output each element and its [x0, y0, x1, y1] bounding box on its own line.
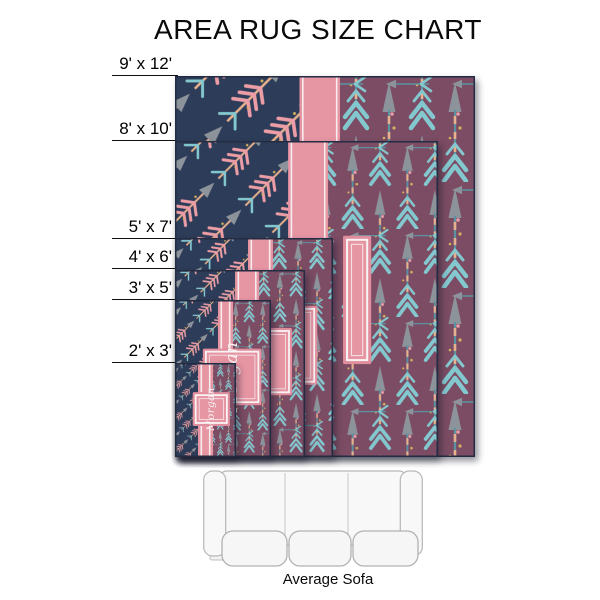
size-line-3x5	[112, 299, 178, 300]
size-label-2x3: 2' x 3'	[70, 341, 172, 361]
size-label-8x10: 8' x 10'	[70, 119, 172, 139]
size-label-3x5: 3' x 5'	[70, 278, 172, 298]
monogram-frame	[343, 236, 371, 364]
page-title: AREA RUG SIZE CHART	[18, 14, 600, 46]
size-label-9x12: 9' x 12'	[70, 54, 172, 74]
area-rug-size-chart: AREA RUG SIZE CHART	[0, 0, 600, 600]
size-label-5x7: 5' x 7'	[70, 217, 172, 237]
rug-2x3: Morgan	[175, 363, 236, 457]
size-line-2x3	[112, 362, 178, 363]
sofa-label: Average Sofa	[228, 571, 428, 588]
size-line-8x10	[112, 140, 178, 141]
size-line-5x7	[112, 238, 178, 239]
monogram-square: Morgan	[193, 387, 230, 432]
size-line-9x12	[112, 75, 178, 76]
size-label-4x6: 4' x 6'	[70, 247, 172, 267]
sofa-illustration	[203, 470, 423, 567]
sofa-seat-cushions	[222, 531, 418, 566]
size-line-4x6	[112, 268, 178, 269]
monogram-text: Morgan	[206, 387, 217, 432]
